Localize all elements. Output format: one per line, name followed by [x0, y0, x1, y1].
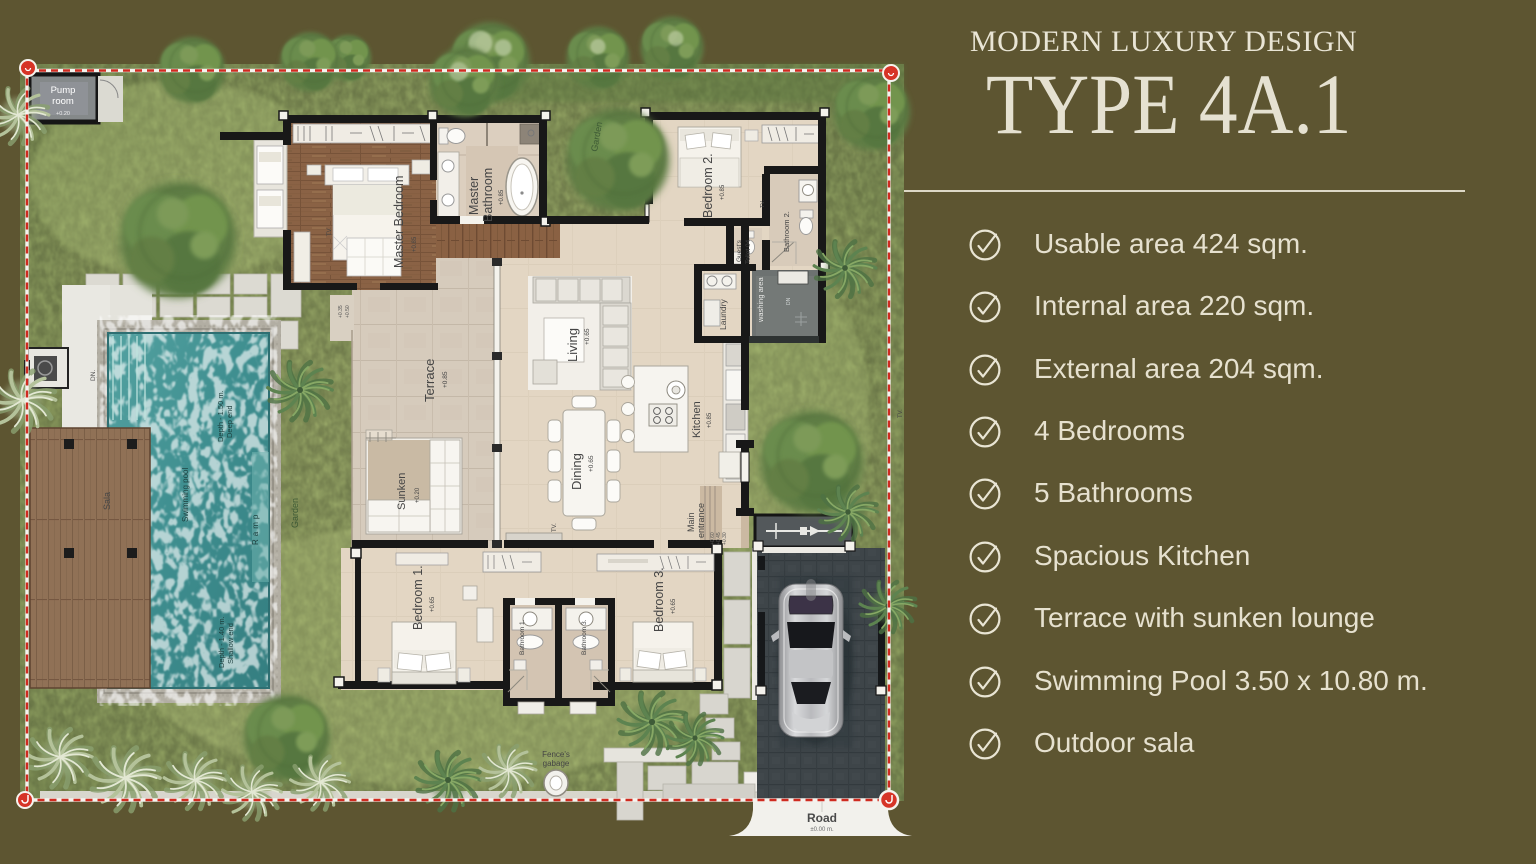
svg-text:Bathroom 3.: Bathroom 3.	[581, 619, 588, 655]
svg-text:Shallow end: Shallow end	[226, 623, 235, 664]
svg-text:+0.50: +0.50	[345, 305, 351, 318]
svg-text:gabage: gabage	[543, 759, 570, 768]
svg-text:entrance: entrance	[696, 503, 706, 538]
svg-text:+0.65: +0.65	[588, 455, 595, 472]
svg-text:Ramp: Ramp	[251, 512, 260, 545]
svg-text:+0.85: +0.85	[707, 412, 713, 428]
svg-text:Bathroom 1.: Bathroom 1.	[519, 619, 526, 655]
svg-text:Living: Living	[565, 328, 580, 362]
svg-text:Bathroom: Bathroom	[481, 168, 495, 222]
svg-text:+0.65: +0.65	[584, 328, 591, 345]
svg-text:washing area: washing area	[756, 277, 765, 323]
svg-text:Depth - 1.40 m.: Depth - 1.40 m.	[217, 616, 226, 668]
svg-text:Garden: Garden	[290, 498, 300, 528]
svg-text:+0.85: +0.85	[442, 371, 449, 388]
svg-text:+0.85: +0.85	[499, 189, 505, 205]
svg-text:Guest's: Guest's	[736, 239, 743, 262]
svg-text:TV.: TV.	[898, 409, 904, 418]
svg-text:±0.00 m.: ±0.00 m.	[810, 827, 834, 833]
svg-text:Terrace: Terrace	[422, 359, 437, 402]
svg-text:Toilet 04: Toilet 04	[745, 239, 752, 264]
svg-text:Sala: Sala	[102, 492, 112, 510]
svg-text:room: room	[52, 96, 74, 107]
svg-text:+0.65: +0.65	[671, 598, 677, 614]
svg-text:Swimming pool: Swimming pool	[181, 468, 190, 522]
svg-text:Bedroom 2.: Bedroom 2.	[701, 153, 715, 218]
svg-text:Sunken: Sunken	[396, 473, 408, 510]
svg-text:+0.85: +0.85	[412, 236, 418, 252]
svg-text:Bedroom 3.: Bedroom 3.	[652, 567, 666, 632]
svg-text:Kitchen: Kitchen	[691, 401, 703, 438]
svg-text:+0.30: +0.30	[722, 532, 728, 545]
svg-text:+0.20: +0.20	[56, 111, 70, 117]
svg-text:Bathroom 2.: Bathroom 2.	[782, 211, 791, 252]
svg-text:+0.35: +0.35	[338, 305, 344, 318]
svg-text:TV.: TV.	[552, 523, 558, 532]
svg-text:+0.20: +0.20	[415, 487, 421, 503]
svg-text:Pump: Pump	[51, 85, 76, 96]
svg-text:+0.65: +0.65	[430, 596, 436, 612]
svg-text:TV.: TV.	[760, 199, 766, 208]
svg-text:Master Bedroom: Master Bedroom	[392, 176, 406, 268]
svg-text:DN: DN	[786, 297, 792, 305]
svg-text:Laundry: Laundry	[718, 299, 728, 330]
svg-text:Fence's: Fence's	[542, 750, 570, 759]
svg-text:+0.85: +0.85	[720, 184, 726, 200]
svg-text:Deep end: Deep end	[225, 405, 234, 438]
svg-text:Road: Road	[807, 811, 837, 825]
svg-text:Bedroom 1.: Bedroom 1.	[411, 565, 425, 630]
svg-text:DN.: DN.	[90, 370, 97, 381]
svg-text:Dining: Dining	[569, 453, 584, 490]
svg-text:Depth - 1.50 m.: Depth - 1.50 m.	[216, 390, 225, 442]
svg-text:Master: Master	[467, 177, 481, 215]
svg-text:Main: Main	[686, 512, 696, 532]
svg-text:TV.: TV.	[327, 227, 333, 236]
